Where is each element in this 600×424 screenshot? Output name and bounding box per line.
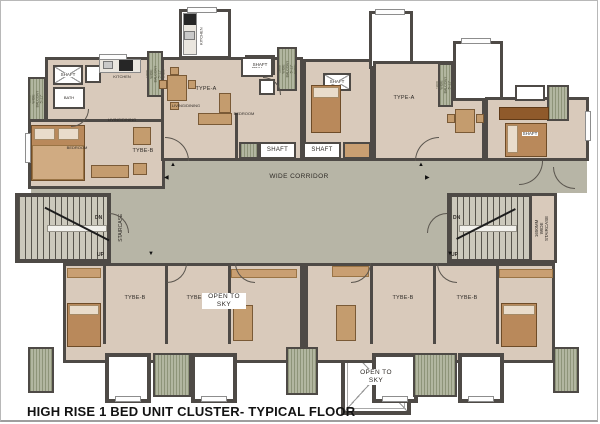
lobby-white xyxy=(515,85,545,101)
table-furniture xyxy=(133,127,151,145)
open-to-sky-label: OPEN TO SKY xyxy=(354,369,398,385)
shaft-box: SHAFT xyxy=(303,142,341,159)
unit-label-wrap: TYBE-B xyxy=(379,294,427,303)
balcony-note: 1800 WIDE BALCONY 5'-11" WIDE xyxy=(435,77,455,94)
white-tower xyxy=(453,41,503,101)
wardrobe xyxy=(499,269,553,278)
balcony-hatch xyxy=(286,347,318,395)
chair xyxy=(170,67,179,75)
dn-label: DN xyxy=(453,206,460,224)
wardrobe xyxy=(67,268,101,278)
wide-corridor-label: WIDE CORRIDOR xyxy=(269,173,328,181)
unit-label-type-a: TYPE-A xyxy=(195,86,216,92)
pillow xyxy=(507,125,518,153)
chair xyxy=(476,114,484,123)
dining-table xyxy=(455,109,475,133)
window xyxy=(201,396,227,402)
corridor-label-wrap: WIDE CORRIDOR xyxy=(239,171,359,183)
shaft-box: SHAFT xyxy=(53,65,83,85)
chair xyxy=(159,80,167,89)
shaft-label: SHAFT xyxy=(267,147,288,154)
unit-label-type-a: TYPE-A xyxy=(393,95,414,101)
staircase-width-label: 1650MM WIDE STAIRCASE xyxy=(536,215,551,240)
sink-icon xyxy=(184,31,195,40)
bath-label: BATH xyxy=(64,96,74,100)
kitchen-label-wrap: KITCHEN xyxy=(195,17,209,55)
door-arrow-icon: ▼ xyxy=(148,251,154,257)
unit-label-wrap: TYPE-A xyxy=(379,94,429,103)
bedroom-label: BEDROOM xyxy=(234,112,255,116)
window xyxy=(187,7,217,13)
window xyxy=(468,396,494,402)
shaft-label: SHAFT xyxy=(329,80,346,85)
window xyxy=(382,396,408,402)
window xyxy=(461,38,491,44)
door-arrow-icon: ▲ xyxy=(170,162,176,168)
balcony-hatch xyxy=(547,85,569,121)
bedroom-label-wrap: BEDROOM xyxy=(221,110,267,118)
pillow xyxy=(58,128,79,140)
unit-label-tybe-b: TYBE-B xyxy=(456,295,477,301)
door-arrow-icon: ▲ xyxy=(418,162,424,168)
page-title: HIGH RISE 1 BED UNIT CLUSTER- TYPICAL FL… xyxy=(27,403,447,419)
door-arrow-icon: ▶ xyxy=(425,175,430,181)
bath-room: BATH xyxy=(53,87,85,109)
pillow xyxy=(503,305,535,315)
living-dining-label: LIVING/DINING xyxy=(172,104,200,108)
up-label: UP xyxy=(97,243,104,261)
interior-wall xyxy=(235,113,238,161)
window xyxy=(375,9,405,15)
unit-label-wrap: TYBE-B xyxy=(111,294,159,303)
unit-label-tybe-b: TYBE-B xyxy=(132,148,153,154)
balcony-hatch xyxy=(553,347,579,393)
sofa-furniture xyxy=(91,165,129,178)
unit-label-wrap: TYPE-A xyxy=(181,85,231,94)
kitchen-label-wrap: KITCHEN xyxy=(97,73,147,82)
window xyxy=(99,54,127,60)
window xyxy=(115,396,141,402)
chair xyxy=(447,114,455,123)
unit-label-tybe-b: TYBE-B xyxy=(124,295,145,301)
door-arrow-icon: ▼ xyxy=(447,251,453,257)
corridor-hatch xyxy=(239,142,259,159)
balcony-note: 1800 WIDE BALCONY 5'-11" WIDE xyxy=(27,91,47,108)
unit-label-wrap: TYBE-B xyxy=(443,294,491,303)
kitchen-label: KITCHEN xyxy=(200,27,204,45)
stove-icon xyxy=(119,60,133,71)
armchair-furniture xyxy=(133,163,147,175)
sink-icon xyxy=(103,61,113,69)
bedroom-label: BEDROOM xyxy=(67,146,88,150)
shaft-label: SHAFT xyxy=(252,63,269,68)
duct-block xyxy=(343,142,371,159)
balcony-hatch xyxy=(28,347,54,393)
floor-plan: 1800 WIDE BALCONY 5'-11" WIDE SHAFT BATH… xyxy=(0,0,598,422)
kitchen-label: KITCHEN xyxy=(113,75,131,79)
sofa-furniture xyxy=(336,305,356,341)
balcony-hatch: 1800 WIDE BALCONY 5'-11" WIDE xyxy=(28,77,46,121)
stair-landing xyxy=(47,225,107,232)
staircase-label-strip: 1650MM WIDE STAIRCASE xyxy=(529,193,557,263)
unit-label-tybe-b: TYBE-B xyxy=(392,295,413,301)
window xyxy=(585,111,591,141)
balcony-hatch: 1800 WIDE BALCONY 5'-11" WIDE xyxy=(277,47,297,91)
balcony-hatch xyxy=(413,353,457,397)
shaft-label: SHAFT xyxy=(311,147,332,154)
interior-wall xyxy=(103,266,106,344)
dn-label: DN xyxy=(95,206,102,224)
balcony-hatch: 1800 WIDE BALCONY 5'-11" WIDE xyxy=(438,63,453,107)
balcony-hatch: 1800 WIDE BALCONY 5'-11" WIDE xyxy=(147,51,163,97)
open-to-sky-label: OPEN TO SKY xyxy=(202,293,246,309)
sofa-furniture xyxy=(233,305,253,341)
shaft-box: SHAFT xyxy=(259,142,296,159)
living-dining-label: LIVING/DINING xyxy=(108,118,136,122)
pillow xyxy=(69,305,99,315)
bedroom-label-wrap: BEDROOM xyxy=(53,144,101,152)
balcony-hatch xyxy=(153,353,191,397)
living-label-wrap: LIVING/DINING xyxy=(97,116,147,124)
pillow xyxy=(34,128,55,140)
exterior-patch xyxy=(557,193,589,265)
balcony-note: 1800 WIDE BALCONY 5'-11" WIDE xyxy=(277,61,297,78)
wardrobe xyxy=(499,107,549,120)
unit-label-wrap: TYBE-B xyxy=(119,147,167,156)
shaft-label: SHAFT xyxy=(60,73,77,78)
interior-wall xyxy=(370,266,373,344)
shaft-label: SHAFT xyxy=(522,132,539,137)
interior-wall xyxy=(433,266,436,344)
window xyxy=(25,133,31,163)
living-label-wrap: LIVING/DINING xyxy=(159,102,213,110)
door-arrow-icon: ◀ xyxy=(164,175,169,181)
pillow xyxy=(313,87,339,98)
